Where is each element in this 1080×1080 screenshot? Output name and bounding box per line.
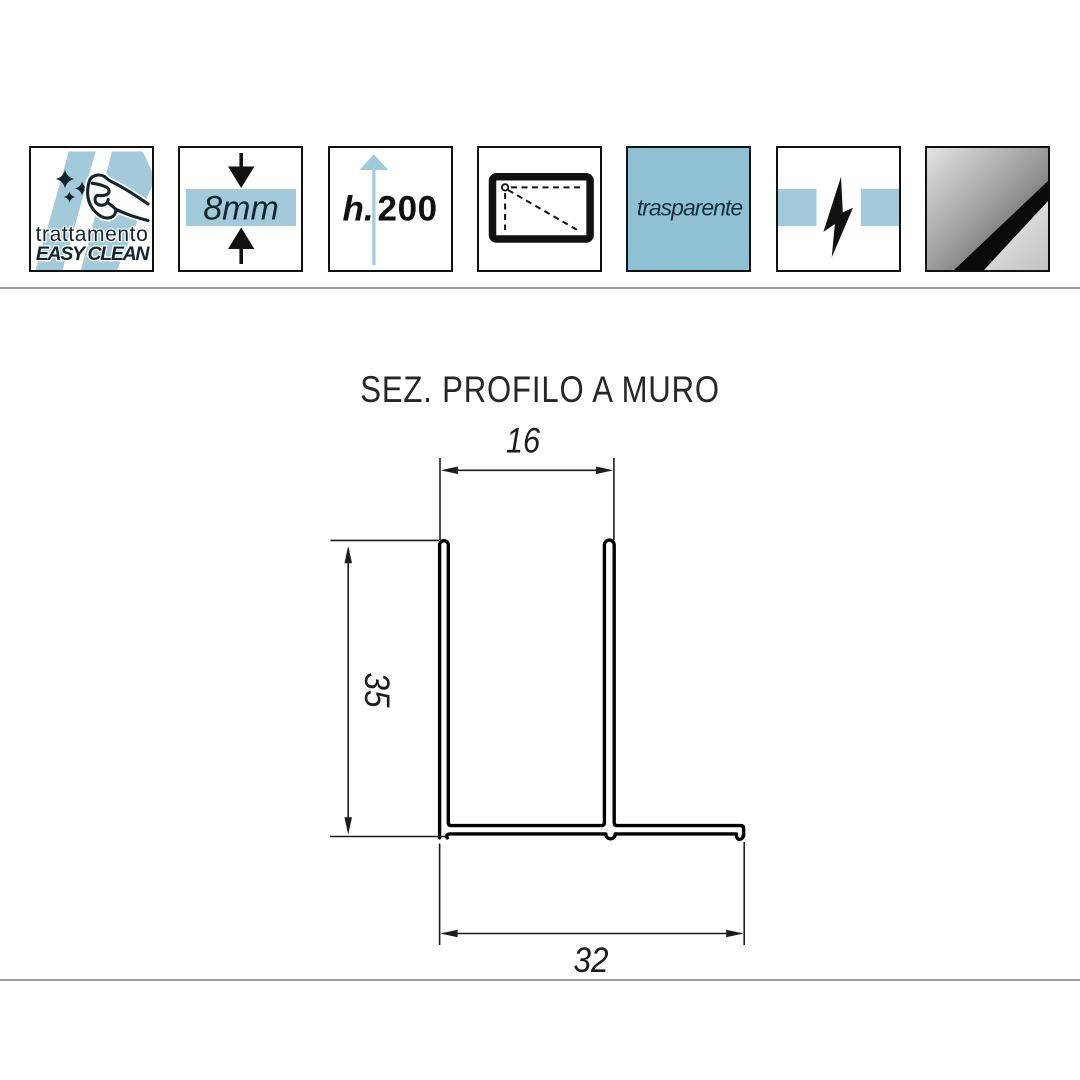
- svg-text:16: 16: [506, 421, 541, 460]
- svg-text:32: 32: [573, 942, 608, 981]
- svg-text:35: 35: [357, 672, 396, 707]
